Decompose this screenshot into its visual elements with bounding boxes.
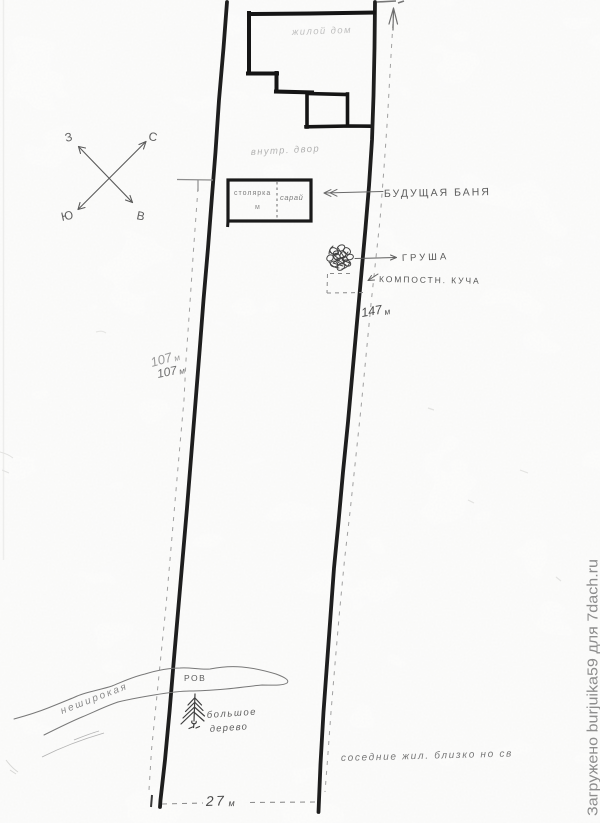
svg-text:ГРУША: ГРУША xyxy=(402,251,450,264)
svg-text:КОМПОСТН. КУЧА: КОМПОСТН. КУЧА xyxy=(379,274,481,286)
svg-text:БУДУЩАЯ БАНЯ: БУДУЩАЯ БАНЯ xyxy=(384,186,491,200)
svg-text:сарай: сарай xyxy=(280,193,304,202)
svg-text:м: м xyxy=(255,204,260,211)
svg-text:Загружено burjuika59 для 7dach: Загружено burjuika59 для 7dach.ru xyxy=(586,559,600,816)
svg-text:жилой дом: жилой дом xyxy=(291,25,352,38)
svg-text:РОВ: РОВ xyxy=(184,673,206,683)
svg-text:столярка: столярка xyxy=(234,190,271,197)
